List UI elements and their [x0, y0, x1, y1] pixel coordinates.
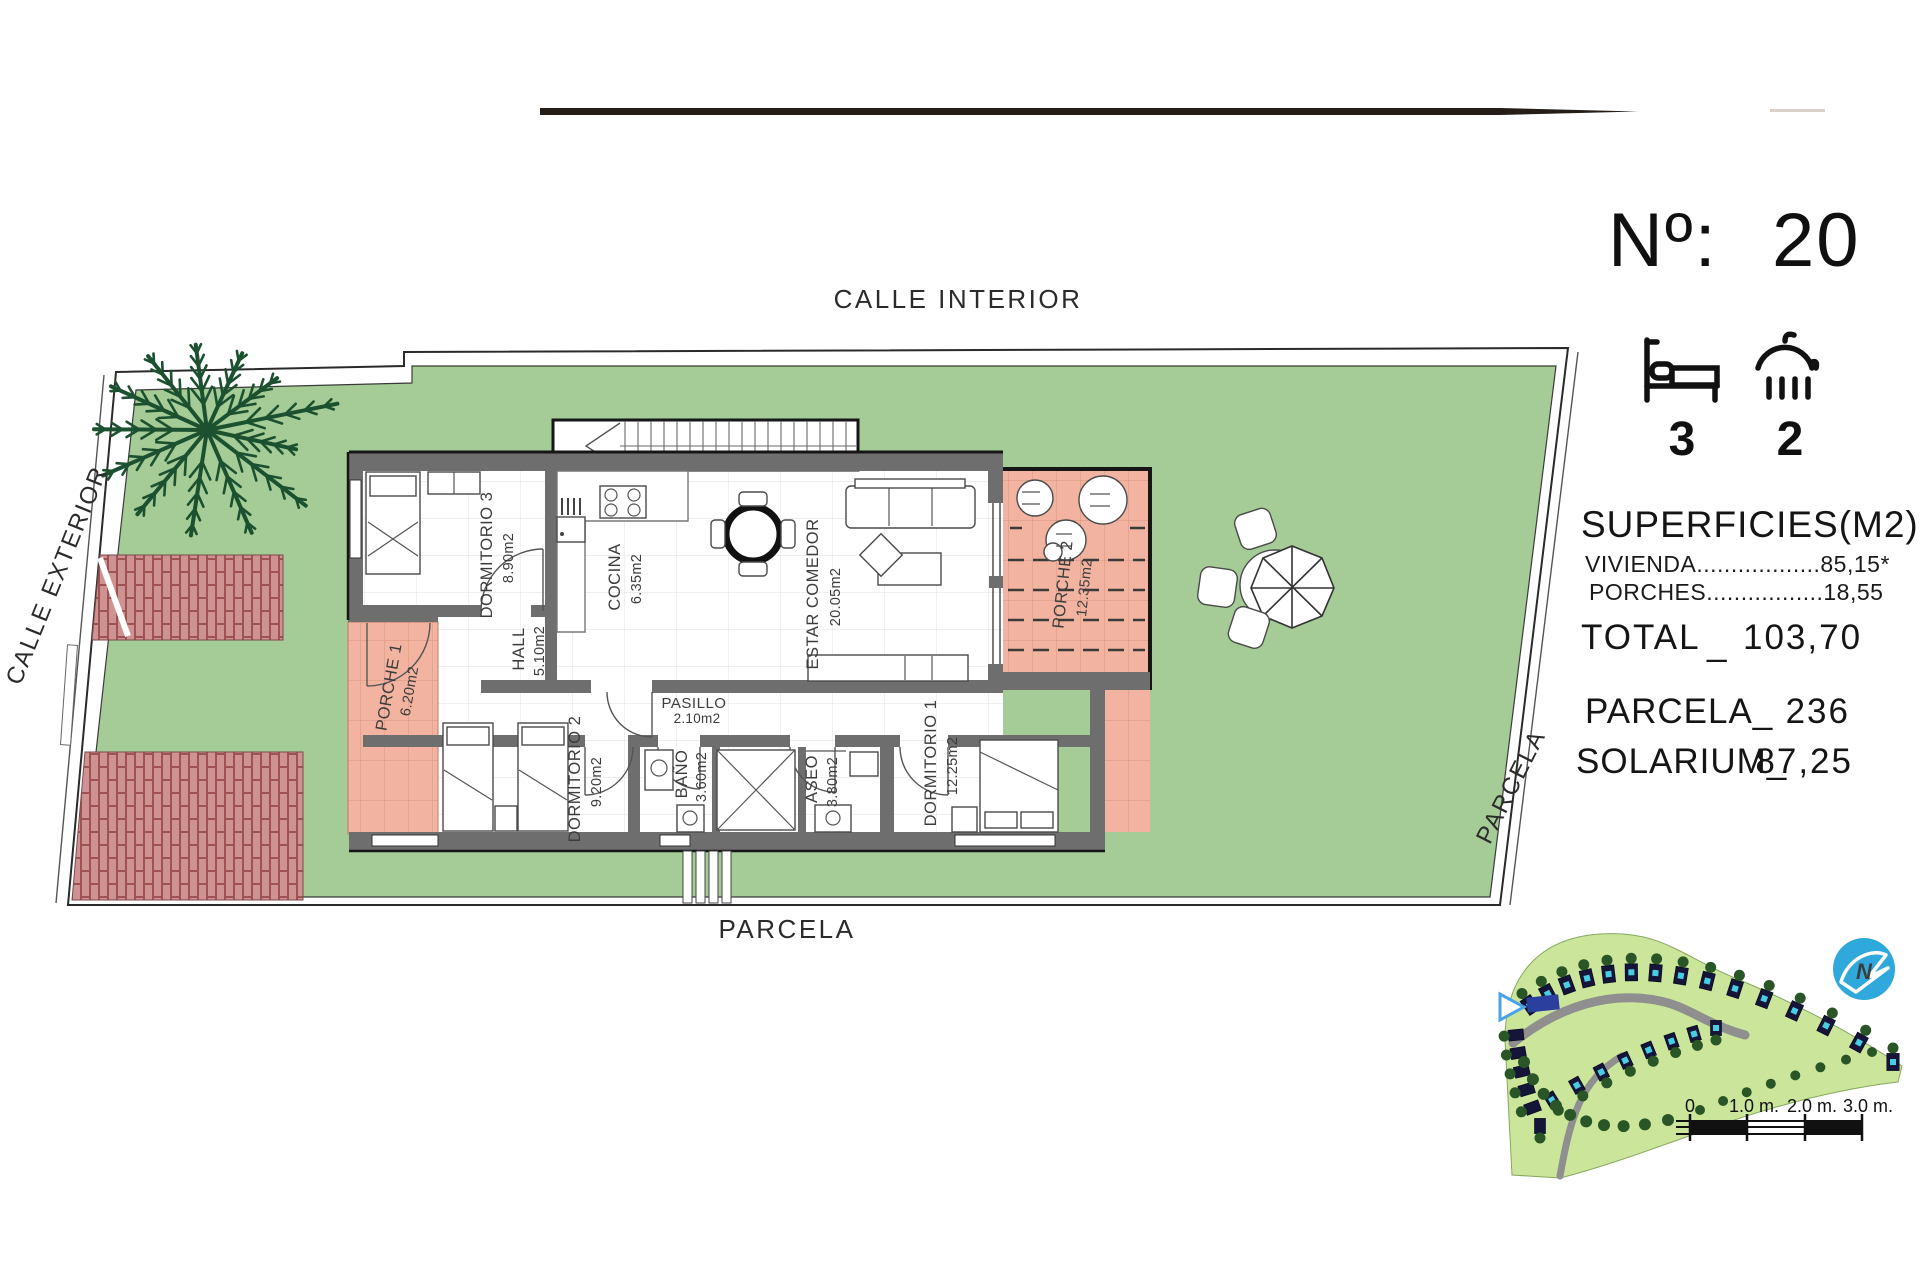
- palm-leaflet: [143, 449, 160, 450]
- top-rule-line: [540, 108, 1638, 115]
- room-label-hall: HALL: [510, 627, 528, 670]
- room-area-hall: 5.10m2: [532, 626, 548, 676]
- bath-vanity: [645, 750, 673, 790]
- top-rule-fade: [1770, 109, 1825, 112]
- site-tree: [1718, 1096, 1728, 1106]
- palm-leaflet: [130, 456, 145, 457]
- site-tree: [1602, 955, 1613, 966]
- palm-leaflet: [156, 442, 176, 443]
- site-tree: [1598, 1119, 1610, 1131]
- site-tree: [1535, 1133, 1546, 1144]
- north-arrow-icon: N: [1833, 938, 1895, 1000]
- room-label-bano: BAÑO: [671, 750, 691, 799]
- street-label-calle-interior: CALLE INTERIOR: [834, 284, 1083, 314]
- site-tree: [1516, 1106, 1527, 1117]
- room-label-aseo: ASEO: [803, 755, 821, 803]
- surfaces-porches: PORCHES.................18,55: [1589, 579, 1883, 605]
- palm-leaflet: [159, 417, 179, 418]
- site-pool: [1605, 971, 1612, 978]
- site-tree: [1841, 1055, 1851, 1065]
- palm-leaflet: [164, 481, 165, 496]
- palm-leaflet: [162, 362, 163, 374]
- site-tree: [1705, 962, 1716, 973]
- sofa: [846, 486, 975, 528]
- site-pool: [1713, 1025, 1719, 1031]
- site-tree: [1505, 1068, 1516, 1079]
- palm-leaflet: [171, 371, 172, 386]
- bed-icon: [1647, 340, 1717, 400]
- porch-chair: [1017, 480, 1053, 516]
- bedroom-count: 3: [1669, 413, 1696, 466]
- site-tree: [1556, 966, 1567, 977]
- site-minimap: N: [1499, 934, 1902, 1178]
- surfaces-parcela-label: PARCELA_: [1585, 692, 1773, 731]
- room-area-dormitorio-1: 12.25m2: [945, 737, 961, 796]
- site-tree: [1888, 1043, 1899, 1054]
- tv-bench: [808, 655, 968, 681]
- site-tree: [1815, 1062, 1825, 1072]
- room-area-pasillo: 2.10m2: [674, 711, 721, 726]
- surfaces-vivienda: VIVIENDA..................85,15*: [1585, 551, 1890, 577]
- porch-chair: [1079, 476, 1127, 524]
- site-tree: [1625, 1066, 1636, 1077]
- scale-tick-0: 0: [1685, 1096, 1695, 1116]
- site-tree: [1860, 1025, 1871, 1036]
- site-tree: [1795, 993, 1806, 1004]
- palm-frond: [94, 429, 207, 430]
- palm-leaflet: [270, 382, 280, 384]
- site-tree: [1766, 1079, 1776, 1089]
- site-tree: [1538, 1088, 1550, 1100]
- site-tree: [1501, 1050, 1512, 1061]
- site-tree: [1695, 1105, 1705, 1115]
- site-tree: [1601, 1077, 1612, 1088]
- plot-number-label: Nº:: [1608, 198, 1718, 283]
- surfaces-solarium-value: 87,25: [1755, 742, 1853, 781]
- brick-terrace-lower: [72, 752, 303, 900]
- street-label-parcela-bottom: PARCELA: [719, 914, 856, 944]
- shower-icon: [1758, 334, 1817, 397]
- room-label-dormitorio-3: DORMITORIO 3: [478, 492, 496, 619]
- room-area-bano: 3.60m2: [694, 752, 710, 802]
- site-tree: [1536, 976, 1547, 987]
- site-plot: [1508, 1029, 1524, 1041]
- palm-leaflet: [185, 455, 186, 475]
- palm-leaflet: [188, 388, 189, 408]
- site-plot: [1535, 1119, 1546, 1134]
- site-tree: [1527, 1073, 1539, 1085]
- site-tree: [1692, 1040, 1703, 1051]
- room-area-aseo: 3.80m2: [825, 757, 841, 807]
- site-tree: [1678, 956, 1689, 967]
- room-area-cocina: 6.35m2: [629, 554, 645, 604]
- nightstand: [495, 806, 517, 831]
- site-tree: [1577, 1090, 1588, 1101]
- site-tree: [1867, 1047, 1877, 1057]
- palm-leaflet: [154, 493, 155, 505]
- site-tree: [1618, 1120, 1630, 1132]
- plot-number-value: 20: [1772, 198, 1861, 283]
- bathroom-count: 2: [1777, 413, 1804, 466]
- site-tree: [1580, 1115, 1592, 1127]
- site-tree: [1499, 1031, 1510, 1042]
- palm-leaflet: [135, 404, 150, 405]
- site-pool: [1652, 970, 1658, 976]
- site-tree: [1518, 1056, 1530, 1068]
- room-area-estar-comedor: 20.05m2: [828, 568, 844, 627]
- toilet: [815, 805, 851, 832]
- floor-plan-canvas: DORMITORIO 3 8.90m2 COCINA 6.35m2 HALL 5…: [0, 0, 1920, 1280]
- site-tree: [1670, 1047, 1681, 1058]
- site-pool: [1890, 1059, 1896, 1065]
- aseo-cabinet: [850, 752, 878, 776]
- nightstand: [952, 807, 977, 832]
- palm-leaflet: [117, 463, 129, 464]
- palm-leaflet: [175, 468, 176, 485]
- site-tree: [1711, 1035, 1722, 1046]
- site-tree: [1648, 1056, 1659, 1067]
- room-label-dormitorio-2: DORMITORIO 2: [566, 716, 584, 843]
- brick-path-upper: [92, 555, 283, 640]
- site-tree: [1550, 1100, 1562, 1112]
- palm-leaflet: [111, 391, 121, 392]
- room-area-dormitorio-3: 8.90m2: [501, 533, 517, 583]
- surfaces-title: SUPERFICIES(M2): [1581, 504, 1919, 545]
- surfaces-total-sep: _: [1706, 624, 1728, 663]
- room-label-cocina: COCINA: [606, 543, 624, 610]
- site-pool: [1677, 972, 1684, 979]
- kitchen-appliance: [557, 517, 585, 542]
- info-panel: Nº: 20 3 2 SUPERFICIES(M2) VIVIENDA.....…: [1576, 198, 1919, 781]
- site-tree: [1662, 1114, 1674, 1126]
- site-tree: [1827, 1008, 1838, 1019]
- scale-tick-3: 3.0 m.: [1843, 1096, 1893, 1116]
- site-tree: [1734, 970, 1745, 981]
- scale-tick-2: 2.0 m.: [1787, 1096, 1837, 1116]
- palm-leaflet: [154, 354, 155, 364]
- site-tree: [1578, 959, 1589, 970]
- site-pool: [1628, 969, 1634, 975]
- site-tree: [1510, 1087, 1521, 1098]
- palm-leaflet: [123, 397, 135, 398]
- room-label-estar-comedor: ESTAR COMEDOR: [804, 518, 822, 669]
- site-tree: [1626, 953, 1637, 964]
- site-tree: [1790, 1070, 1800, 1080]
- dining-table: [726, 507, 780, 561]
- room-label-dormitorio-1: DORMITORIO 1: [922, 700, 940, 827]
- palm-leaflet: [180, 380, 181, 397]
- scale-tick-1: 1.0 m.: [1729, 1096, 1779, 1116]
- site-tree: [1564, 1109, 1576, 1121]
- palm-leaflet: [237, 351, 239, 361]
- svg-text:N: N: [1856, 959, 1873, 984]
- site-tree: [1517, 988, 1528, 999]
- palm-leaflet: [147, 410, 164, 411]
- room-area-dormitorio-2: 9.20m2: [589, 757, 605, 807]
- toilet: [677, 805, 704, 832]
- surfaces-parcela-value: 236: [1786, 692, 1850, 731]
- top-rule: [540, 108, 1825, 115]
- site-tree: [1764, 980, 1775, 991]
- room-label-pasillo: PASILLO: [662, 695, 727, 712]
- garden-chair: [1197, 566, 1239, 609]
- house: [348, 420, 1152, 903]
- surfaces-total-value: 103,70: [1743, 618, 1862, 657]
- porch2-side-strip: [1105, 690, 1150, 832]
- surfaces-total-label: TOTAL: [1581, 618, 1701, 657]
- site-tree: [1651, 953, 1662, 964]
- site-tree: [1639, 1118, 1651, 1130]
